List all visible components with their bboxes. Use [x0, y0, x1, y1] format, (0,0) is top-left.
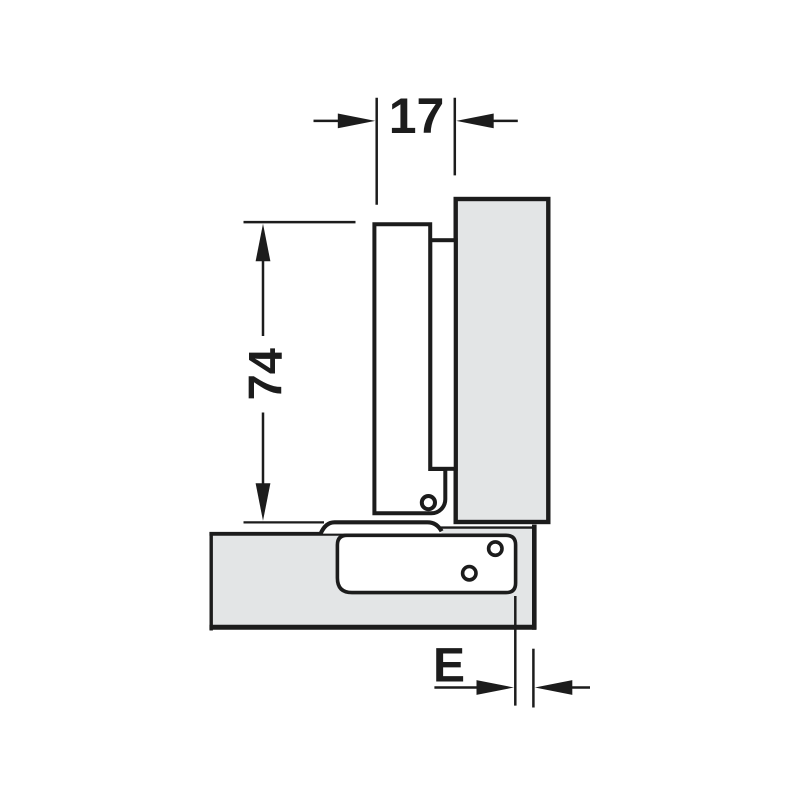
svg-text:17: 17 [389, 88, 445, 144]
svg-text:E: E [433, 639, 465, 692]
svg-text:74: 74 [239, 348, 292, 400]
